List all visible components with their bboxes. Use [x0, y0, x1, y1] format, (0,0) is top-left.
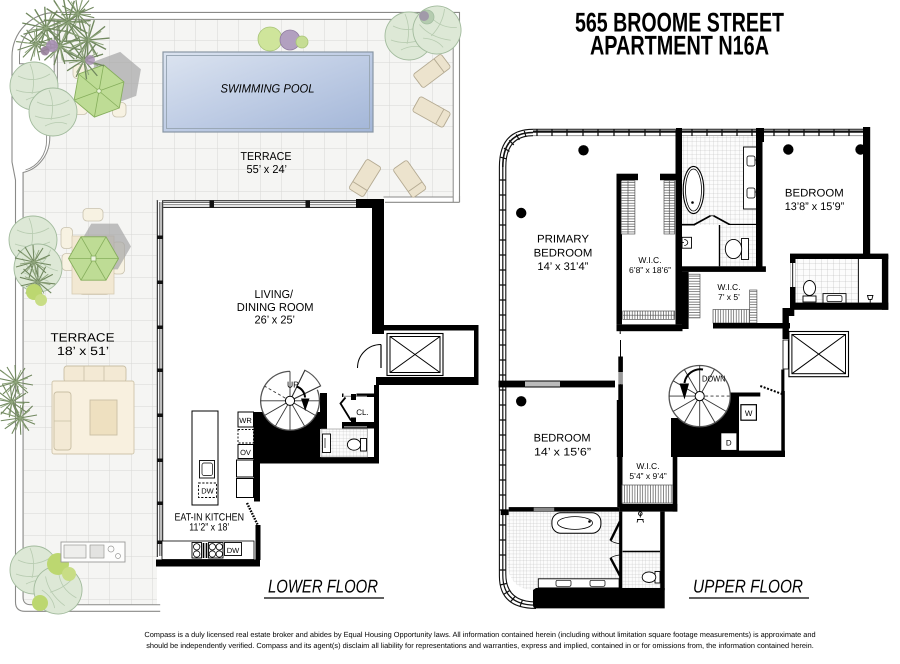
svg-text:PRIMARY: PRIMARY: [537, 234, 590, 246]
svg-text:TERRACE: TERRACE: [241, 151, 292, 163]
svg-text:55’ x 24’: 55’ x 24’: [247, 164, 288, 176]
svg-text:18’ x 51’: 18’ x 51’: [57, 344, 109, 358]
svg-text:DW: DW: [227, 546, 240, 555]
svg-text:BEDROOM: BEDROOM: [534, 433, 591, 445]
svg-text:11’2” x 18’: 11’2” x 18’: [189, 521, 229, 533]
svg-text:W.I.C.: W.I.C.: [636, 461, 659, 471]
svg-text:LOWER FLOOR: LOWER FLOOR: [268, 576, 378, 597]
svg-text:DINING ROOM: DINING ROOM: [237, 302, 314, 314]
svg-text:7’ x 5’: 7’ x 5’: [718, 292, 740, 302]
svg-text:DW: DW: [201, 487, 214, 496]
svg-text:CL.: CL.: [356, 408, 368, 417]
svg-text:5’4” x 9’4”: 5’4” x 9’4”: [629, 471, 666, 481]
svg-text:13’8” x 15’9”: 13’8” x 15’9”: [785, 201, 845, 213]
svg-text:6’8” x 18’6”: 6’8” x 18’6”: [629, 265, 671, 275]
svg-text:BEDROOM: BEDROOM: [534, 247, 593, 259]
svg-text:W.I.C.: W.I.C.: [717, 282, 740, 292]
svg-text:26’ x 25’: 26’ x 25’: [255, 315, 296, 327]
svg-text:W.I.C.: W.I.C.: [638, 255, 661, 265]
svg-text:WR: WR: [239, 416, 252, 425]
svg-text:14’ x 31’4”: 14’ x 31’4”: [537, 261, 588, 273]
svg-text:14’ x 15’6”: 14’ x 15’6”: [534, 446, 591, 458]
svg-text:APARTMENT N16A: APARTMENT N16A: [590, 31, 769, 61]
svg-text:LIVING/: LIVING/: [255, 289, 294, 301]
svg-text:W: W: [745, 409, 753, 418]
svg-text:BEDROOM: BEDROOM: [785, 188, 844, 200]
svg-text:should be independently verifi: should be independently verified. Compas…: [146, 641, 814, 650]
svg-text:DOWN: DOWN: [702, 374, 726, 384]
svg-text:UP: UP: [287, 380, 299, 390]
svg-text:TERRACE: TERRACE: [51, 331, 115, 345]
svg-text:SWIMMING POOL: SWIMMING POOL: [221, 82, 315, 96]
svg-text:Compass is a duly licensed rea: Compass is a duly licensed real estate b…: [144, 630, 815, 639]
svg-text:OV: OV: [240, 448, 251, 457]
svg-text:D: D: [726, 439, 732, 448]
svg-text:UPPER FLOOR: UPPER FLOOR: [693, 576, 803, 597]
